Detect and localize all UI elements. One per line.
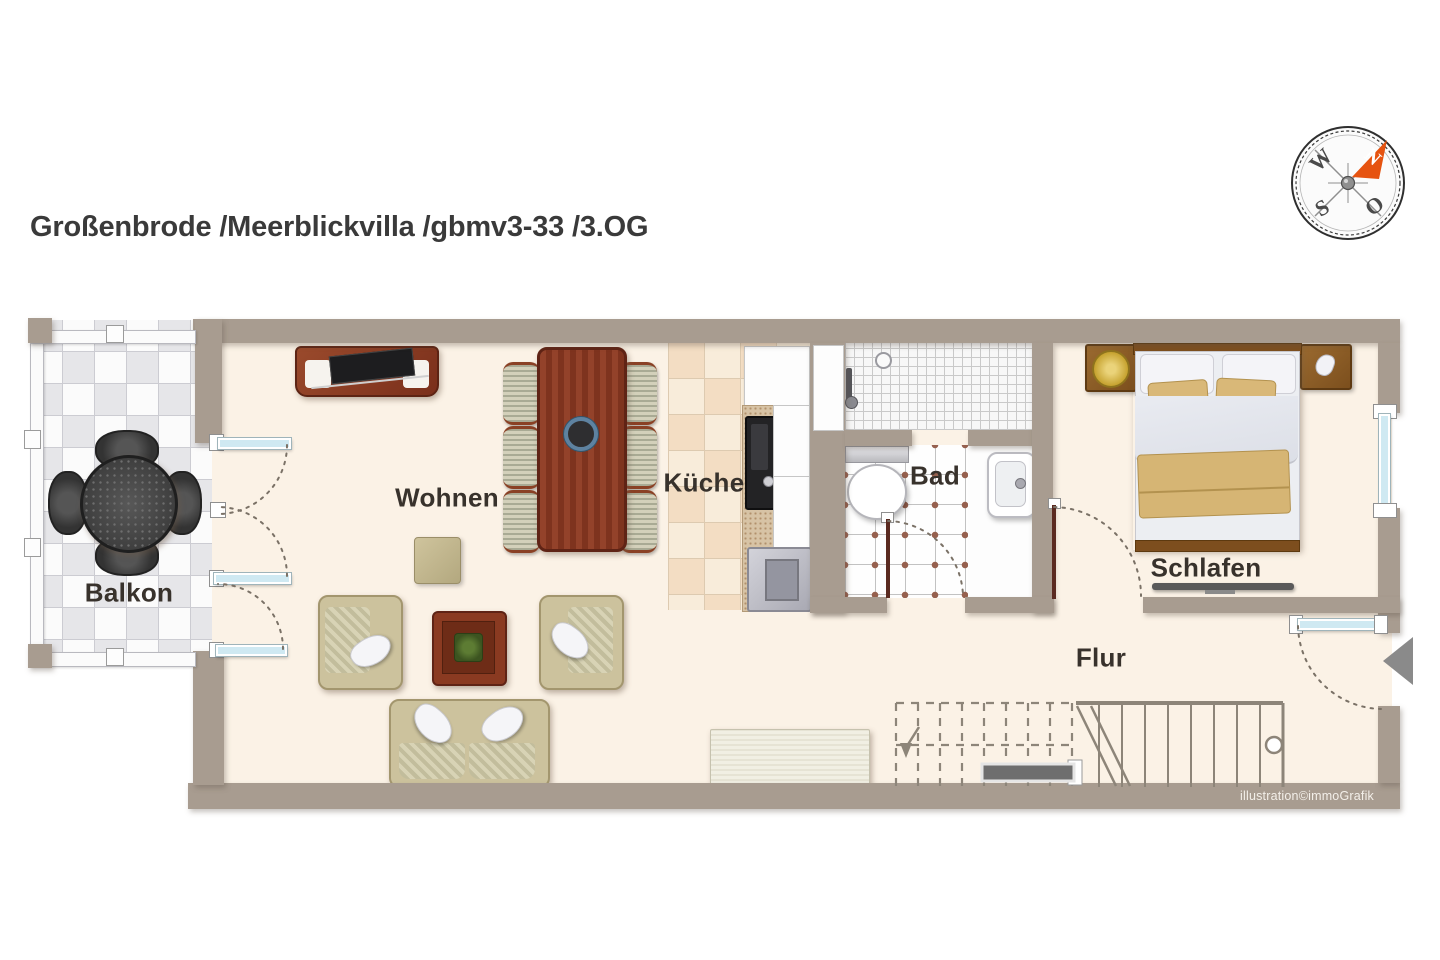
wall-shower-left <box>845 430 912 446</box>
stove <box>747 547 812 612</box>
balcony-post <box>24 538 41 557</box>
bedroom-window <box>1379 414 1390 510</box>
floorplan-page: Großenbrode /Meerblickvilla /gbmv3-33 /3… <box>0 0 1440 960</box>
entrance-arrow <box>1383 637 1413 685</box>
room-label-flur: Flur <box>1076 643 1126 674</box>
nightstand-left <box>1085 344 1137 392</box>
balcony-post-bottomleft <box>28 644 52 668</box>
credit-text: illustration©immoGrafik <box>1240 789 1374 803</box>
sideboard-inset-left <box>305 360 331 388</box>
kitchen-cabinet-top <box>744 346 810 408</box>
nightstand-right <box>1300 344 1352 390</box>
dining-chair <box>503 490 540 553</box>
washbasin-faucet <box>1015 478 1026 489</box>
blanket <box>1137 449 1291 518</box>
tv-sideboard <box>295 346 439 397</box>
wall-bath-right <box>1032 343 1053 613</box>
bedroom-dresser <box>1152 583 1294 590</box>
balcony-post-topleft <box>28 318 52 343</box>
balcony-door-leaf-2 <box>214 573 291 584</box>
table-lamp <box>1092 350 1130 388</box>
armchair-right <box>539 595 624 690</box>
wall-bedroom-bottom <box>1143 597 1400 613</box>
kitchen-cabinet-mid2 <box>773 476 810 549</box>
shower-floor <box>845 343 1035 430</box>
bath-door-leaf <box>886 519 890 598</box>
hall-sideboard <box>710 729 870 785</box>
room-label-bad: Bad <box>910 461 960 492</box>
bedroom-dresser-foot <box>1205 590 1235 594</box>
balcony-door-leaf-1 <box>218 438 291 449</box>
room-label-schlafen: Schlafen <box>1151 553 1262 584</box>
washbasin <box>987 452 1036 518</box>
window-cap <box>1373 503 1397 518</box>
sofa-pillow-right <box>477 698 530 749</box>
wall-top <box>193 319 1400 343</box>
door-cap <box>1374 615 1388 634</box>
sink-basin <box>751 424 768 470</box>
footboard <box>1135 540 1300 552</box>
wall-left-upper <box>195 319 222 443</box>
deco-shell <box>1313 352 1337 379</box>
wall-left-lower <box>193 651 224 785</box>
balcony-rail-left <box>30 330 44 658</box>
wall-bottom <box>188 783 1400 809</box>
balcony-table <box>80 455 178 553</box>
door-mullion <box>210 502 226 518</box>
coffee-table <box>432 611 507 686</box>
double-bed <box>1133 343 1300 550</box>
wall-bath-bottom-left <box>810 597 887 613</box>
ottoman <box>414 537 461 584</box>
shower-drain <box>875 352 892 369</box>
compass-icon <box>1288 123 1408 243</box>
dining-chair <box>503 362 540 425</box>
shower-knob <box>845 396 858 409</box>
kitchen-sink <box>745 416 776 510</box>
toilet <box>847 464 907 520</box>
sofa-seat-left <box>399 743 465 779</box>
room-label-kueche: Küche <box>664 468 745 499</box>
tall-cabinet <box>813 345 844 431</box>
page-title: Großenbrode /Meerblickvilla /gbmv3-33 /3… <box>30 211 648 244</box>
balcony-post <box>106 648 124 666</box>
compass-rose: W N O S <box>1288 123 1408 243</box>
bath-shelf <box>845 446 909 463</box>
blanket-fold <box>1139 486 1289 493</box>
armchair-left <box>318 595 403 690</box>
sofa <box>389 699 550 788</box>
sofa-seat-right <box>469 743 535 779</box>
wall-right-3 <box>1378 706 1400 783</box>
wall-right-1 <box>1378 343 1400 413</box>
wall-bath-bottom-right <box>965 597 1054 613</box>
balcony-post <box>24 430 41 449</box>
balcony-post <box>106 325 124 343</box>
stove-inner <box>765 559 799 601</box>
balcony-door-leaf-3 <box>216 645 287 656</box>
bedroom-door-leaf <box>1052 505 1056 599</box>
kitchen-cabinet-mid <box>773 405 810 478</box>
entry-door-leaf <box>1298 619 1382 630</box>
table-plate <box>564 417 598 451</box>
plant <box>454 633 483 662</box>
wall-shower-right <box>968 430 1034 446</box>
sofa-pillow-left <box>407 698 460 749</box>
room-label-wohnen: Wohnen <box>395 483 499 514</box>
dining-chair <box>503 426 540 489</box>
room-label-balkon: Balkon <box>85 578 173 609</box>
